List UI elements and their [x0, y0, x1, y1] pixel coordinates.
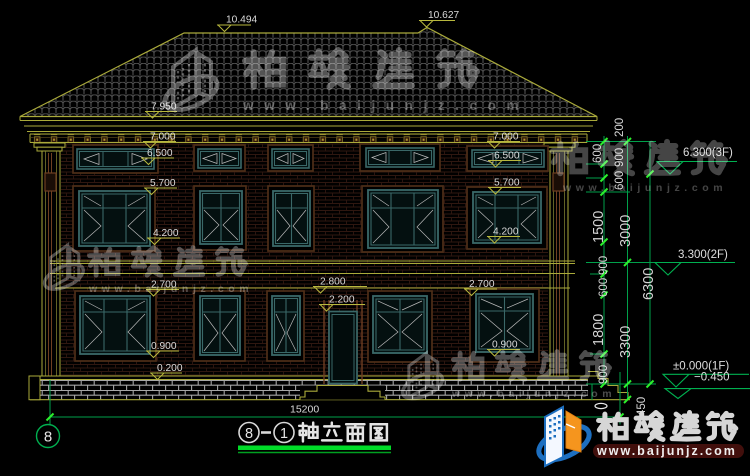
svg-text:0.200: 0.200 — [157, 363, 183, 374]
svg-text:www.baijunjz.com: www.baijunjz.com — [451, 388, 616, 400]
svg-text:2.700: 2.700 — [469, 279, 495, 290]
svg-text:1: 1 — [280, 426, 288, 442]
svg-text:600: 600 — [598, 278, 610, 297]
svg-text:www.baijunjz.com: www.baijunjz.com — [88, 283, 253, 295]
svg-text:1800: 1800 — [591, 314, 607, 346]
svg-text:1500: 1500 — [591, 211, 607, 243]
svg-text:7.000: 7.000 — [150, 132, 176, 143]
svg-text:7.000: 7.000 — [493, 132, 519, 143]
svg-text:6300: 6300 — [641, 268, 657, 300]
svg-text:6.500: 6.500 — [494, 151, 520, 162]
svg-text:−0.450: −0.450 — [694, 372, 730, 384]
svg-text:2.800: 2.800 — [320, 277, 346, 288]
svg-text:www.baijunjz.com: www.baijunjz.com — [596, 444, 737, 458]
svg-text:8: 8 — [245, 426, 253, 442]
svg-text:www.baijunjz.com: www.baijunjz.com — [562, 182, 727, 194]
svg-text:4.200: 4.200 — [493, 227, 519, 238]
svg-text:0.900: 0.900 — [151, 341, 177, 352]
svg-text:8: 8 — [44, 429, 52, 446]
svg-text:10.627: 10.627 — [428, 10, 459, 21]
svg-text:5.700: 5.700 — [494, 178, 520, 189]
svg-text:0.900: 0.900 — [492, 340, 518, 351]
svg-text:www.baijunjz.com: www.baijunjz.com — [242, 98, 529, 113]
svg-text:4.200: 4.200 — [153, 228, 179, 239]
svg-text:3300: 3300 — [618, 326, 634, 358]
svg-text:10.494: 10.494 — [226, 15, 257, 26]
svg-text:200: 200 — [614, 118, 626, 137]
svg-text:3000: 3000 — [618, 215, 634, 247]
svg-text:3.300(2F): 3.300(2F) — [678, 249, 728, 261]
svg-text:15200: 15200 — [290, 404, 319, 416]
svg-text:5.700: 5.700 — [150, 178, 176, 189]
svg-text:900: 900 — [598, 256, 610, 275]
svg-text:6.500: 6.500 — [147, 148, 173, 159]
svg-text:2.200: 2.200 — [329, 295, 355, 306]
